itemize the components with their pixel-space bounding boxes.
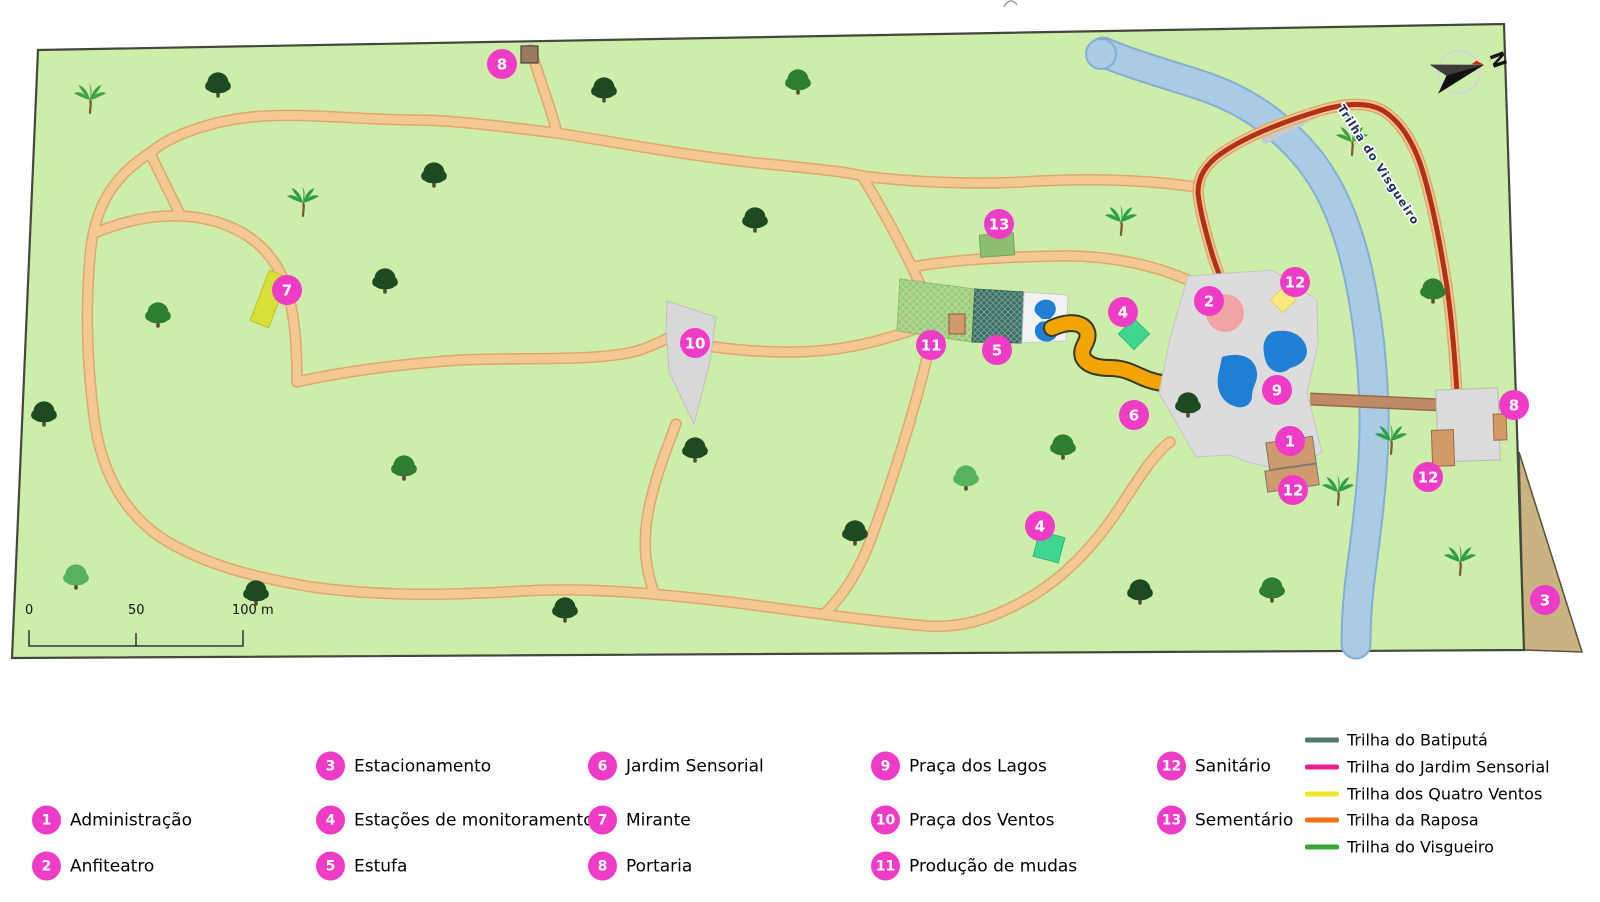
legend-item-label: Mirante bbox=[626, 810, 691, 830]
svg-text:1: 1 bbox=[1285, 433, 1295, 451]
legend-item-label: Estações de monitoramento bbox=[354, 810, 594, 830]
svg-text:3: 3 bbox=[1540, 592, 1550, 610]
trail-legend-item: Trilha do Visgueiro bbox=[1305, 838, 1494, 857]
svg-text:13: 13 bbox=[989, 216, 1010, 234]
edge-artifact bbox=[1004, 1, 1017, 7]
marker-badge: 12 bbox=[1157, 752, 1186, 781]
marker-badge: 1 bbox=[32, 806, 61, 835]
svg-text:7: 7 bbox=[282, 282, 292, 300]
park-map: Trilha do Visgueiro N 0 50 100 m 8713115… bbox=[0, 0, 1600, 662]
trail-legend-label: Trilha do Jardim Sensorial bbox=[1347, 758, 1550, 777]
svg-text:2: 2 bbox=[1204, 293, 1214, 311]
map-marker-6: 6 bbox=[1119, 400, 1149, 430]
map-marker-4: 4 bbox=[1025, 511, 1055, 541]
legend-item-8: 8Portaria bbox=[588, 852, 692, 881]
east-sanitario-structure bbox=[1431, 430, 1454, 467]
map-marker-13: 13 bbox=[984, 209, 1014, 239]
map-marker-2: 2 bbox=[1194, 286, 1224, 316]
gate-building bbox=[521, 46, 538, 63]
marker-badge: 13 bbox=[1157, 806, 1186, 835]
scale-50: 50 bbox=[128, 603, 145, 618]
trail-legend-label: Trilha do Visgueiro bbox=[1347, 838, 1494, 857]
svg-text:12: 12 bbox=[1285, 274, 1306, 292]
map-marker-12: 12 bbox=[1278, 475, 1308, 505]
svg-text:4: 4 bbox=[1035, 518, 1045, 536]
legend-item-label: Praça dos Ventos bbox=[909, 810, 1054, 830]
marker-badge: 6 bbox=[588, 752, 617, 781]
legend-item-label: Sanitário bbox=[1195, 756, 1271, 776]
east-portaria-structure bbox=[1493, 414, 1507, 440]
trail-legend-item: Trilha do Batiputá bbox=[1305, 731, 1488, 750]
svg-text:8: 8 bbox=[497, 56, 507, 74]
legend-item-label: Portaria bbox=[626, 856, 692, 876]
svg-text:8: 8 bbox=[1509, 397, 1519, 415]
legend-item-3: 3Estacionamento bbox=[316, 752, 491, 781]
map-marker-8: 8 bbox=[1499, 390, 1529, 420]
svg-text:4: 4 bbox=[1118, 304, 1128, 322]
marker-badge: 4 bbox=[316, 806, 345, 835]
river-bridge bbox=[1310, 399, 1441, 405]
marker-badge: 5 bbox=[316, 852, 345, 881]
map-marker-5: 5 bbox=[982, 335, 1012, 365]
legend-item-label: Estacionamento bbox=[354, 756, 491, 776]
trail-legend-label: Trilha dos Quatro Ventos bbox=[1347, 785, 1542, 804]
trail-color-swatch bbox=[1305, 792, 1339, 797]
park-map-page: Trilha do Visgueiro N 0 50 100 m 8713115… bbox=[0, 0, 1600, 902]
marker-badge: 3 bbox=[316, 752, 345, 781]
marker-badge: 8 bbox=[588, 852, 617, 881]
trail-color-swatch bbox=[1305, 845, 1339, 850]
legend-panel: Legenda Locais do Jardim 1Administração2… bbox=[0, 660, 1600, 902]
svg-text:9: 9 bbox=[1272, 382, 1282, 400]
legend-item-12: 12Sanitário bbox=[1157, 752, 1271, 781]
map-marker-7: 7 bbox=[272, 275, 302, 305]
svg-text:12: 12 bbox=[1418, 469, 1439, 487]
map-marker-12: 12 bbox=[1280, 267, 1310, 297]
legend-item-2: 2Anfiteatro bbox=[32, 852, 154, 881]
trail-legend-label: Trilha do Batiputá bbox=[1347, 731, 1488, 750]
legend-item-label: Sementário bbox=[1195, 810, 1293, 830]
trail-color-swatch bbox=[1305, 765, 1339, 770]
map-marker-4: 4 bbox=[1108, 297, 1138, 327]
marker-badge: 7 bbox=[588, 806, 617, 835]
legend-item-11: 11Produção de mudas bbox=[871, 852, 1077, 881]
trail-color-swatch bbox=[1305, 738, 1339, 743]
trail-legend-item: Trilha da Raposa bbox=[1305, 811, 1479, 830]
marker-badge: 2 bbox=[32, 852, 61, 881]
svg-text:12: 12 bbox=[1283, 482, 1304, 500]
legend-item-13: 13Sementário bbox=[1157, 806, 1293, 835]
map-marker-3: 3 bbox=[1530, 585, 1560, 615]
parking-area bbox=[1519, 452, 1582, 652]
legend-item-label: Administração bbox=[70, 810, 192, 830]
legend-item-label: Produção de mudas bbox=[909, 856, 1077, 876]
legend-item-4: 4Estações de monitoramento bbox=[316, 806, 594, 835]
legend-item-7: 7Mirante bbox=[588, 806, 691, 835]
map-marker-1: 1 bbox=[1275, 426, 1305, 456]
legend-item-9: 9Praça dos Lagos bbox=[871, 752, 1047, 781]
svg-text:5: 5 bbox=[992, 342, 1002, 360]
estufa-hatch bbox=[972, 289, 1024, 343]
trail-legend-label: Trilha da Raposa bbox=[1347, 811, 1479, 830]
legend-item-1: 1Administração bbox=[32, 806, 192, 835]
marker-badge: 10 bbox=[871, 806, 900, 835]
marker-badge: 11 bbox=[871, 852, 900, 881]
trail-color-swatch bbox=[1305, 818, 1339, 823]
legend-item-5: 5Estufa bbox=[316, 852, 407, 881]
legend-item-label: Anfiteatro bbox=[70, 856, 154, 876]
map-marker-9: 9 bbox=[1262, 375, 1292, 405]
legend-item-10: 10Praça dos Ventos bbox=[871, 806, 1054, 835]
map-marker-8: 8 bbox=[487, 49, 517, 79]
map-marker-11: 11 bbox=[916, 330, 946, 360]
legend-item-label: Estufa bbox=[354, 856, 407, 876]
mudas-building bbox=[949, 314, 965, 334]
svg-text:11: 11 bbox=[921, 337, 942, 355]
marker-badge: 9 bbox=[871, 752, 900, 781]
legend-item-6: 6Jardim Sensorial bbox=[588, 752, 764, 781]
trail-legend-item: Trilha dos Quatro Ventos bbox=[1305, 785, 1542, 804]
map-marker-10: 10 bbox=[680, 328, 710, 358]
svg-text:6: 6 bbox=[1129, 407, 1139, 425]
legend-item-label: Jardim Sensorial bbox=[626, 756, 764, 776]
svg-text:10: 10 bbox=[685, 335, 706, 353]
map-marker-12: 12 bbox=[1413, 462, 1443, 492]
scale-0: 0 bbox=[25, 603, 33, 618]
trail-legend-item: Trilha do Jardim Sensorial bbox=[1305, 758, 1550, 777]
scale-100: 100 m bbox=[232, 603, 274, 618]
legend-item-label: Praça dos Lagos bbox=[909, 756, 1047, 776]
